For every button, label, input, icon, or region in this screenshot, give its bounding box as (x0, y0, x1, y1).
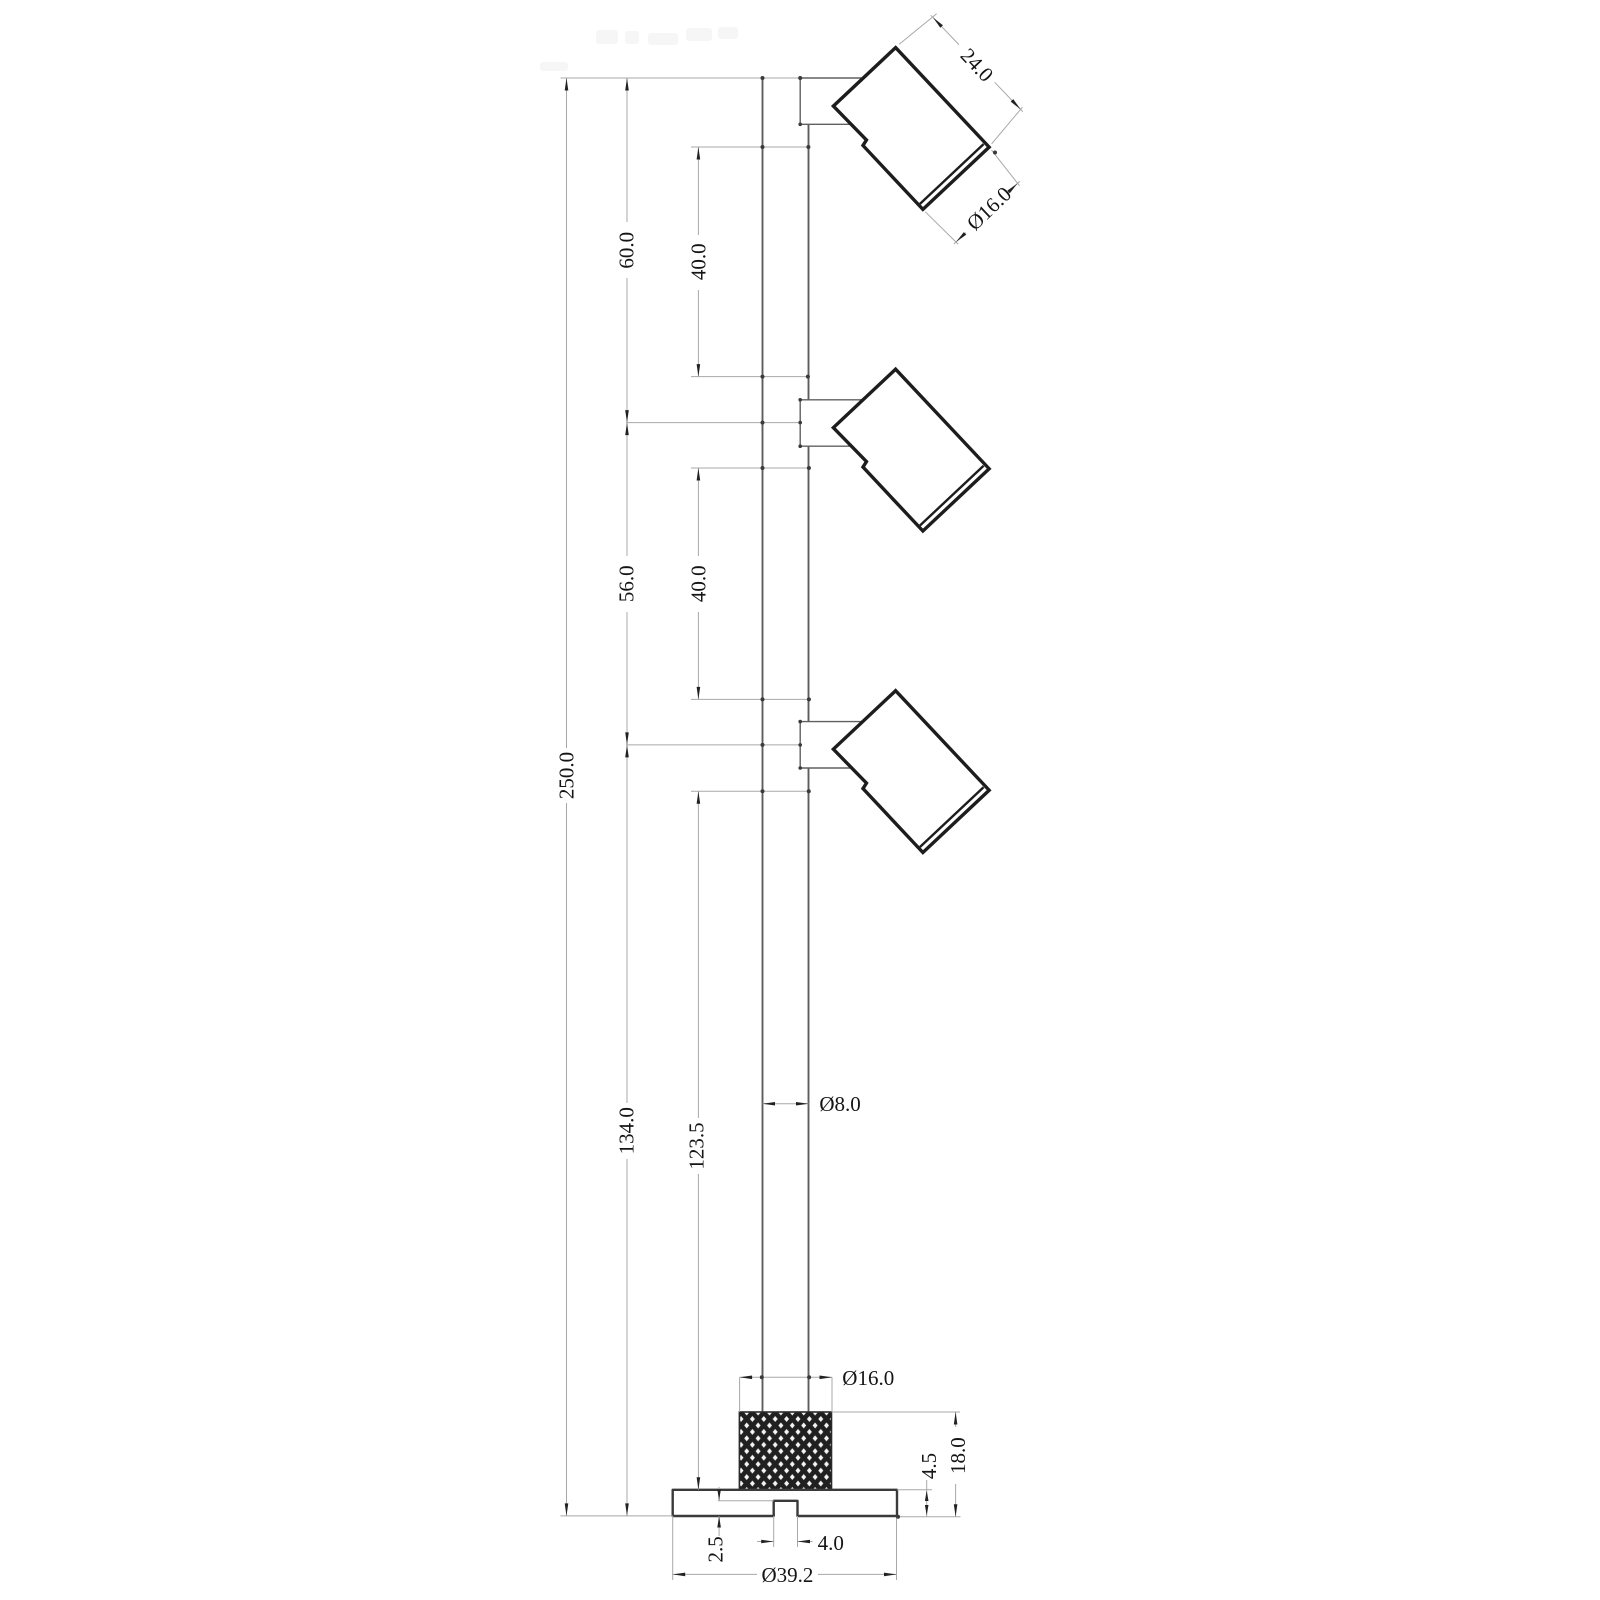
svg-text:60.0: 60.0 (615, 232, 639, 269)
svg-text:2.5: 2.5 (704, 1536, 728, 1562)
svg-text:4.5: 4.5 (917, 1453, 941, 1479)
svg-text:123.5: 123.5 (685, 1122, 709, 1169)
svg-text:Ø39.2: Ø39.2 (761, 1563, 813, 1587)
svg-text:250.0: 250.0 (554, 752, 578, 799)
svg-text:40.0: 40.0 (687, 243, 711, 280)
svg-text:40.0: 40.0 (687, 565, 711, 602)
svg-text:134.0: 134.0 (615, 1107, 639, 1154)
svg-text:18.0: 18.0 (946, 1437, 970, 1474)
svg-text:Ø8.0: Ø8.0 (819, 1092, 860, 1116)
svg-text:Ø16.0: Ø16.0 (842, 1366, 894, 1390)
svg-text:4.0: 4.0 (818, 1531, 844, 1555)
svg-text:56.0: 56.0 (615, 565, 639, 602)
